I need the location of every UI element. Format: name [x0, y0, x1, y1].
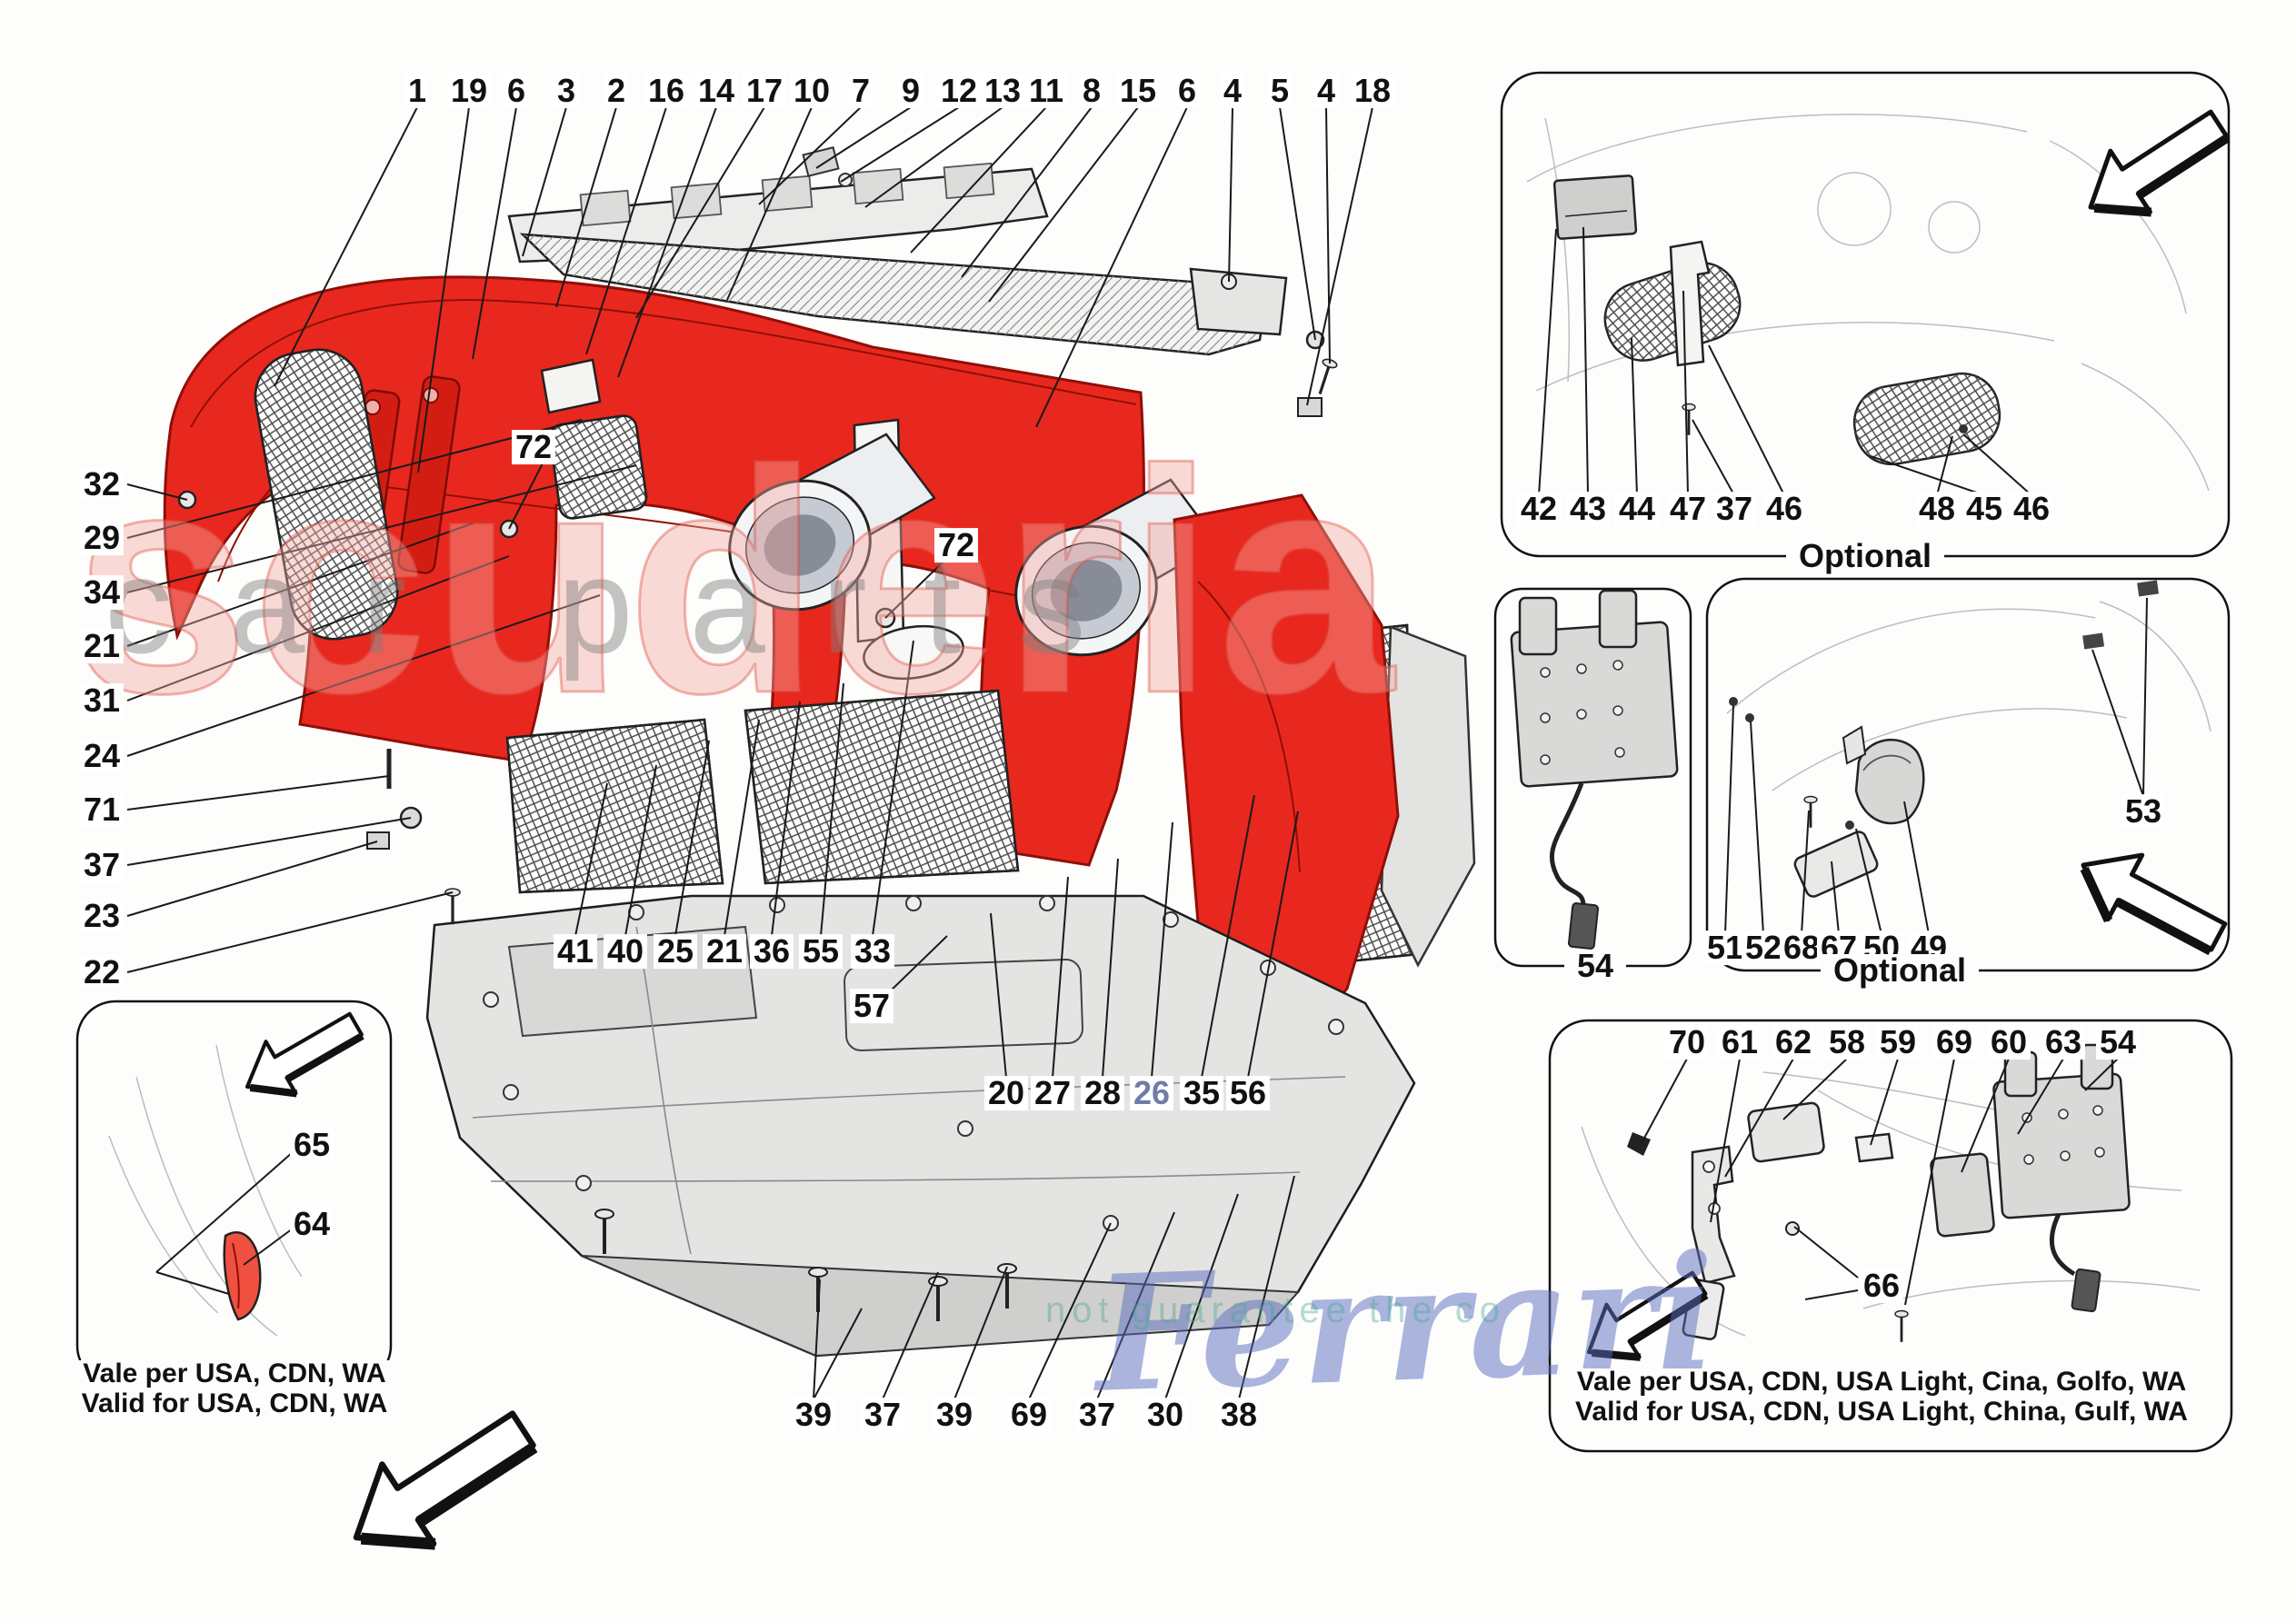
callout-47: 47: [1666, 492, 1710, 526]
callout-44: 44: [1615, 492, 1659, 526]
callout-8: 8: [1079, 74, 1104, 108]
callout-70: 70: [1665, 1025, 1709, 1060]
callout-20: 20: [984, 1076, 1028, 1110]
callout-38: 38: [1217, 1398, 1261, 1432]
callout-29: 29: [80, 521, 124, 555]
callout-52: 52: [1742, 930, 1785, 965]
callout-19: 19: [447, 74, 491, 108]
callout-9: 9: [898, 74, 923, 108]
callout-6b: 6: [1174, 74, 1200, 108]
callout-64: 64: [290, 1207, 334, 1241]
callout-41: 41: [554, 934, 597, 969]
callout-15: 15: [1116, 74, 1160, 108]
callout-37c: 37: [1712, 492, 1756, 526]
callout-69: 69: [1007, 1398, 1051, 1432]
callout-66: 66: [1860, 1269, 1903, 1303]
callout-31: 31: [80, 683, 124, 718]
callout-34: 34: [80, 575, 124, 610]
callout-5: 5: [1267, 74, 1293, 108]
callout-58: 58: [1825, 1025, 1869, 1060]
inset-bottom-right-content: [1572, 1045, 2200, 1379]
callout-55: 55: [799, 934, 843, 969]
callout-37b: 37: [1075, 1398, 1119, 1432]
inset-mid-right-content: [1725, 581, 2235, 970]
callout-72a: 72: [512, 430, 555, 464]
callout-28: 28: [1081, 1076, 1124, 1110]
callout-26: 26: [1130, 1076, 1173, 1110]
optional-caption-1: Optional: [1786, 540, 1944, 572]
callout-37a: 37: [861, 1398, 904, 1432]
callout-32: 32: [80, 467, 124, 502]
inset-bottom-left-content: [109, 999, 371, 1336]
callout-43: 43: [1566, 492, 1610, 526]
callout-25: 25: [654, 934, 697, 969]
callout-13: 13: [981, 74, 1024, 108]
callout-7: 7: [848, 74, 873, 108]
callout-56: 56: [1226, 1076, 1270, 1110]
validity-note-left-line1: Vale per USA, CDN, WA: [77, 1360, 391, 1388]
callout-3: 3: [554, 74, 579, 108]
callout-48: 48: [1915, 492, 1959, 526]
callout-60: 60: [1987, 1025, 2031, 1060]
callout-22: 22: [80, 955, 124, 990]
inset-bottom-left-box: [77, 1001, 391, 1384]
validity-note-right-line2: Valid for USA, CDN, USA Light, China, Gu…: [1570, 1398, 2193, 1426]
callout-18: 18: [1351, 74, 1394, 108]
callout-45: 45: [1962, 492, 2006, 526]
callout-69b: 69: [1932, 1025, 1976, 1060]
callout-59: 59: [1876, 1025, 1920, 1060]
callout-46b: 46: [2010, 492, 2053, 526]
callout-30: 30: [1143, 1398, 1187, 1432]
callout-36: 36: [750, 934, 794, 969]
callout-46: 46: [1762, 492, 1806, 526]
callout-1: 1: [404, 74, 430, 108]
callout-51: 51: [1703, 930, 1747, 965]
callout-54: 54: [1564, 950, 1626, 982]
callout-57: 57: [850, 989, 893, 1023]
callout-6: 6: [504, 74, 529, 108]
callout-21: 21: [80, 629, 124, 663]
callout-62: 62: [1772, 1025, 1815, 1060]
callout-72b: 72: [934, 528, 978, 562]
callout-63: 63: [2041, 1025, 2085, 1060]
callout-11: 11: [1025, 74, 1067, 108]
optional-caption-2: Optional: [1821, 954, 1979, 987]
callout-4: 4: [1220, 74, 1245, 108]
callout-40: 40: [604, 934, 647, 969]
callout-21b: 21: [703, 934, 746, 969]
callout-4b: 4: [1313, 74, 1339, 108]
inset-top-right-content: [1527, 94, 2239, 495]
callout-71: 71: [80, 792, 124, 827]
callout-37: 37: [80, 848, 124, 882]
callout-39a: 39: [792, 1398, 835, 1432]
callout-2: 2: [604, 74, 629, 108]
callout-35: 35: [1180, 1076, 1223, 1110]
callout-24: 24: [80, 739, 124, 773]
callout-23: 23: [80, 899, 124, 933]
callout-17: 17: [743, 74, 786, 108]
callout-39b: 39: [933, 1398, 976, 1432]
validity-note-left-line2: Valid for USA, CDN, WA: [76, 1390, 394, 1418]
callout-12: 12: [937, 74, 981, 108]
side-reflector: [225, 1232, 260, 1319]
callout-61: 61: [1718, 1025, 1762, 1060]
callout-42: 42: [1517, 492, 1561, 526]
callout-33: 33: [851, 934, 894, 969]
validity-note-right-line1: Vale per USA, CDN, USA Light, Cina, Golf…: [1572, 1368, 2192, 1396]
callout-16: 16: [644, 74, 688, 108]
callout-53: 53: [2121, 794, 2165, 829]
inset-plate-content: [1511, 591, 1677, 949]
callout-54b: 54: [2096, 1025, 2140, 1060]
parts-diagram-page: scuderia car parts Ferrari not guarantee…: [0, 0, 2296, 1622]
callout-14: 14: [694, 74, 738, 108]
callout-27: 27: [1031, 1076, 1074, 1110]
callout-65: 65: [290, 1128, 334, 1162]
callout-10: 10: [790, 74, 834, 108]
